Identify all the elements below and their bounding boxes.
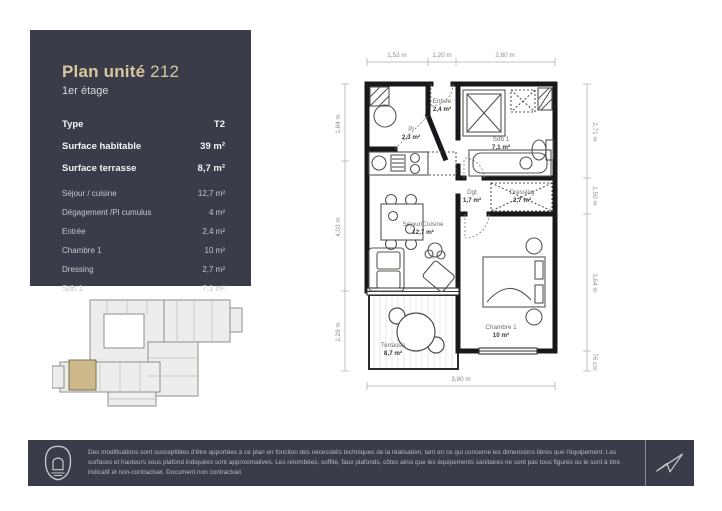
room-areas-table: Séjour / cuisine 12,7 m² Dégagement /Pl … (62, 189, 225, 293)
room-area-entree: 2,4 m² (433, 106, 451, 113)
summary-value: T2 (214, 119, 225, 130)
room-area-chambre: 10 m² (493, 332, 509, 339)
room-label: Entrée (62, 227, 86, 236)
room-value: 12,7 m² (198, 189, 225, 198)
bedroom-door (465, 214, 489, 238)
room-row: Dégagement /Pl cumulus 4 m² (62, 208, 225, 217)
dim-right-3: 3,64 m (591, 273, 598, 293)
room-label-pl: Pl (408, 126, 414, 133)
page-title-text: Plan unité (62, 62, 145, 81)
footer-bar: Des modifications sont susceptibles d'êt… (28, 440, 694, 486)
room-label: Dressing (62, 265, 94, 274)
summary-row: Surface terrasse 8,7 m² (62, 163, 225, 174)
summary-label: Surface habitable (62, 141, 141, 152)
room-label-terrasse: Terrasse (381, 342, 406, 349)
summary-value: 8,7 m² (198, 163, 225, 174)
room-value: 4 m² (209, 208, 225, 217)
floor-plan: 1,52 m 1,20 m 2,80 m 1,84 m 4,03 m 2,28 … (323, 46, 625, 404)
bathtub (469, 150, 551, 176)
courtyard (104, 314, 144, 348)
water-heater (370, 87, 396, 127)
room-value: 2,4 m² (202, 227, 225, 236)
cursor-arrow-icon (655, 451, 685, 475)
building-key-plan (52, 292, 248, 434)
dim-right-2: 1,50 m (591, 186, 598, 206)
room-value: 10 m² (205, 246, 225, 255)
terrace (369, 295, 458, 369)
summary-table: Type T2 Surface habitable 39 m² Surface … (62, 119, 225, 174)
room-row: Entrée 2,4 m² (62, 227, 225, 236)
dim-right-4: 76 cm (591, 353, 598, 370)
room-label-dressing: Dressing (510, 189, 535, 196)
sofa (369, 248, 404, 291)
summary-row: Type T2 (62, 119, 225, 130)
room-row: Dressing 2,7 m² (62, 265, 225, 274)
summary-label: Surface terrasse (62, 163, 136, 174)
bed (483, 238, 545, 325)
room-label-sejour: Séjour/Cuisine (403, 221, 444, 228)
room-label-sdb: Sdb 1 (493, 136, 510, 143)
disclaimer-text: Des modifications sont susceptibles d'êt… (88, 448, 645, 479)
room-area-dgt: 1,7 m² (463, 197, 481, 204)
dim-left-2: 4,03 m (335, 217, 342, 237)
plan-sheet-page: Plan unité 212 1er étage Type T2 Surface… (0, 0, 722, 511)
room-row: Chambre 1 10 m² (62, 246, 225, 255)
room-area-sejour: 12,7 m² (412, 229, 434, 236)
room-area-sdb: 7,1 m² (492, 144, 510, 151)
dim-left-3: 2,28 m (335, 322, 342, 342)
key-plan-drawing (52, 292, 248, 434)
floor-plan-drawing: 1,52 m 1,20 m 2,80 m 1,84 m 4,03 m 2,28 … (323, 46, 625, 404)
summary-label: Type (62, 119, 83, 130)
dim-top-1: 1,52 m (387, 52, 407, 59)
room-label-entree: Entrée (433, 98, 452, 105)
summary-value: 39 m² (200, 141, 225, 152)
room-label-chambre: Chambre 1 (485, 324, 517, 331)
floor-label: 1er étage (62, 85, 225, 97)
room-area-dressing: 2,7 m² (513, 197, 531, 204)
room-label: Dégagement /Pl cumulus (62, 208, 151, 217)
room-area-pl: 2,3 m² (402, 134, 420, 141)
brand-emblem-icon (28, 444, 88, 482)
dim-left-1: 1,84 m (335, 114, 342, 134)
dim-right-1: 2,71 m (591, 122, 598, 142)
room-label-dgt: Dgt (467, 189, 477, 196)
room-area-terrasse: 8,7 m² (384, 350, 402, 357)
page-title: Plan unité 212 (62, 62, 225, 82)
room-label: Séjour / cuisine (62, 189, 117, 198)
unit-info-panel: Plan unité 212 1er étage Type T2 Surface… (30, 30, 251, 286)
room-row: Séjour / cuisine 12,7 m² (62, 189, 225, 198)
dim-top-2: 1,20 m (432, 52, 452, 59)
dim-bottom-1: 3,80 m (451, 376, 471, 383)
plant (425, 243, 445, 259)
highlighted-unit-212 (69, 360, 96, 390)
room-label: Chambre 1 (62, 246, 102, 255)
unit-number: 212 (150, 62, 179, 81)
next-arrow-button[interactable] (646, 451, 694, 475)
washbasin-unit (511, 88, 552, 112)
summary-row: Surface habitable 39 m² (62, 141, 225, 152)
dim-top-3: 2,80 m (495, 52, 515, 59)
room-value: 2,7 m² (202, 265, 225, 274)
shower (463, 90, 505, 136)
